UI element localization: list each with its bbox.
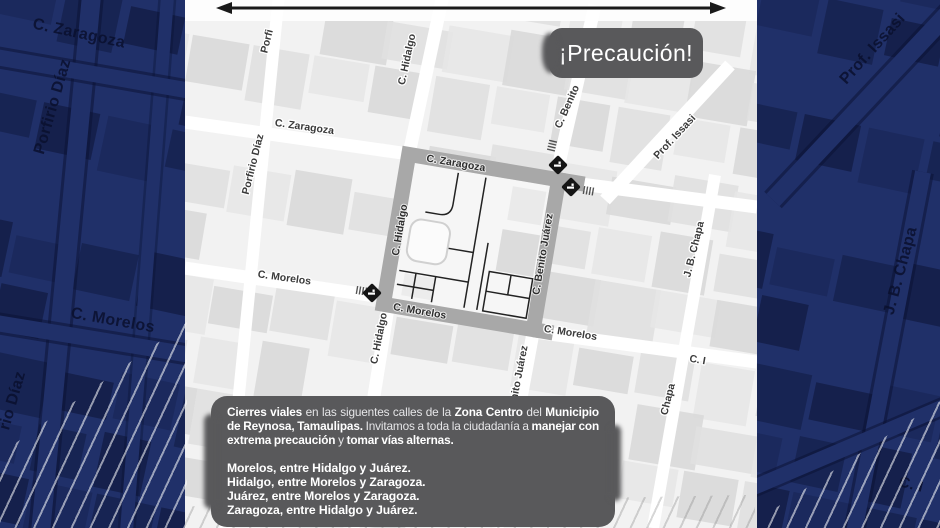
background-map-left-panel: C. Zaragoza Porfirio Díaz C. Morelos rio… xyxy=(0,0,187,528)
advisory-text-block: Cierres viales en las siguentes calles d… xyxy=(211,396,615,527)
caution-banner-text: ¡Precaución! xyxy=(559,40,693,67)
arrow-head-right-icon xyxy=(710,2,726,14)
closure-item: Zaragoza, entre Hidalgo y Juárez. xyxy=(227,503,599,517)
arrow-head-left-icon xyxy=(216,2,232,14)
road-closure-advisory-graphic: C. Zaragoza Porfirio Díaz C. Morelos rio… xyxy=(0,0,940,528)
top-span-arrow xyxy=(185,0,757,20)
closure-item: Juárez, entre Morelos y Zaragoza. xyxy=(227,489,599,503)
closure-list: Morelos, entre Hidalgo y Juárez.Hidalgo,… xyxy=(227,461,599,518)
advisory-paragraph: Cierres viales en las siguentes calles d… xyxy=(227,405,599,448)
closure-item: Morelos, entre Hidalgo y Juárez. xyxy=(227,461,599,475)
caution-banner: ¡Precaución! xyxy=(549,28,703,78)
background-map-right-panel: Prof. Issasi J. B. Chapa C. I xyxy=(753,0,940,528)
closure-item: Hidalgo, entre Morelos y Zaragoza. xyxy=(227,475,599,489)
